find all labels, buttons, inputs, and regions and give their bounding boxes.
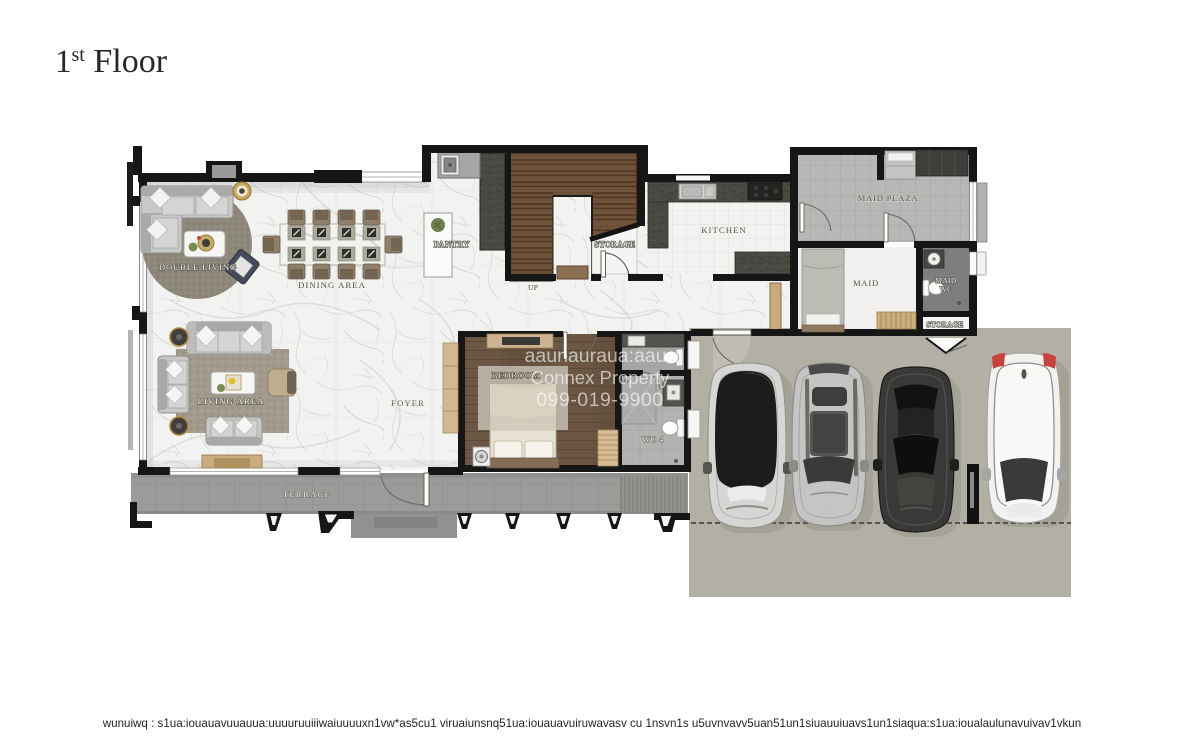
svg-text:wunuiwq : s1ua:iouauavuuauua:u: wunuiwq : s1ua:iouauavuuauua:uuuuruuiiiw… bbox=[102, 717, 1081, 730]
svg-text:WC: WC bbox=[940, 285, 953, 294]
svg-text:Connex Property: Connex Property bbox=[531, 367, 671, 388]
svg-text:DINING AREA: DINING AREA bbox=[298, 280, 366, 290]
svg-text:aaunauraua:aaua: aaunauraua:aaua bbox=[525, 345, 678, 367]
svg-text:LIVING AREA: LIVING AREA bbox=[198, 396, 265, 406]
svg-text:FOYER: FOYER bbox=[391, 398, 425, 408]
svg-text:STORAGE: STORAGE bbox=[594, 240, 635, 249]
svg-text:KITCHEN: KITCHEN bbox=[701, 225, 747, 235]
svg-text:UP: UP bbox=[528, 283, 539, 292]
svg-text:DOUBLE LIVING: DOUBLE LIVING bbox=[159, 262, 237, 272]
svg-text:PANTRY: PANTRY bbox=[434, 239, 470, 249]
svg-text:MAID PLAZA: MAID PLAZA bbox=[858, 193, 919, 203]
svg-text:TERRACE: TERRACE bbox=[283, 489, 331, 499]
svg-text:099-019-9900: 099-019-9900 bbox=[536, 389, 663, 411]
svg-text:STORAGE: STORAGE bbox=[927, 320, 964, 329]
svg-text:WC 4: WC 4 bbox=[642, 435, 664, 444]
svg-text:MAID: MAID bbox=[853, 278, 879, 288]
